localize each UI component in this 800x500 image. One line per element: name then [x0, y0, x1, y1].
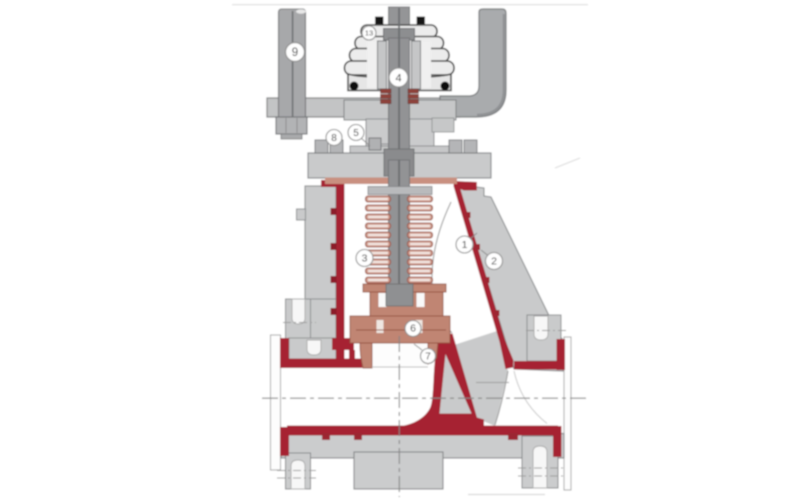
svg-text:9: 9 — [292, 47, 298, 59]
svg-text:3: 3 — [362, 253, 368, 265]
svg-text:8: 8 — [331, 133, 337, 144]
svg-text:6: 6 — [410, 323, 416, 335]
svg-text:7: 7 — [425, 352, 431, 363]
svg-text:13: 13 — [365, 29, 373, 38]
svg-text:4: 4 — [395, 73, 401, 85]
svg-text:2: 2 — [491, 256, 497, 268]
svg-text:1: 1 — [462, 239, 468, 251]
svg-text:5: 5 — [353, 128, 359, 139]
